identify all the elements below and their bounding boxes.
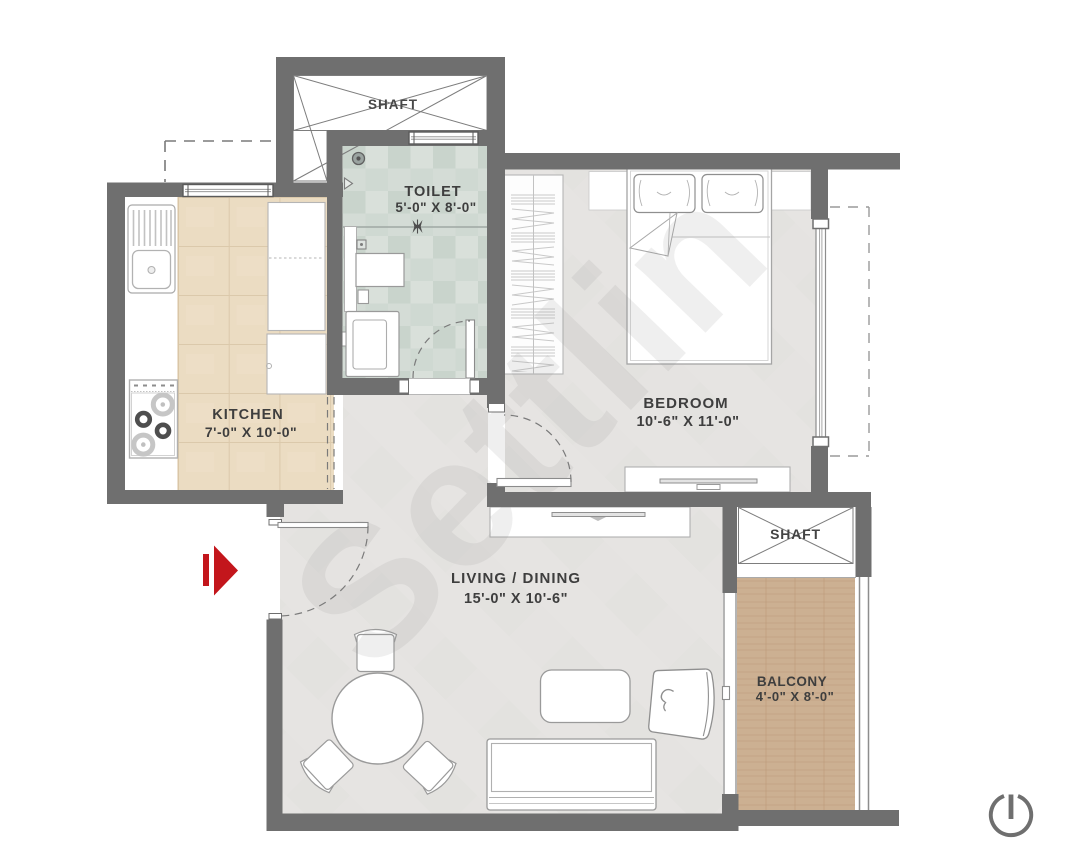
svg-text:7'-0" X 10'-0": 7'-0" X 10'-0" [205, 424, 297, 440]
svg-text:10'-6" X 11'-0": 10'-6" X 11'-0" [636, 414, 739, 430]
svg-text:LIVING / DINING: LIVING / DINING [451, 570, 581, 587]
svg-text:SHAFT: SHAFT [368, 97, 418, 112]
svg-text:BALCONY: BALCONY [757, 674, 827, 689]
svg-text:KITCHEN: KITCHEN [212, 407, 283, 423]
svg-text:BEDROOM: BEDROOM [643, 395, 728, 412]
svg-text:TOILET: TOILET [404, 184, 461, 200]
svg-text:15'-0" X 10'-6": 15'-0" X 10'-6" [464, 591, 568, 607]
svg-text:5'-0" X 8'-0": 5'-0" X 8'-0" [395, 200, 476, 215]
svg-text:4'-0" X 8'-0": 4'-0" X 8'-0" [756, 689, 834, 704]
svg-text:SHAFT: SHAFT [770, 526, 821, 542]
